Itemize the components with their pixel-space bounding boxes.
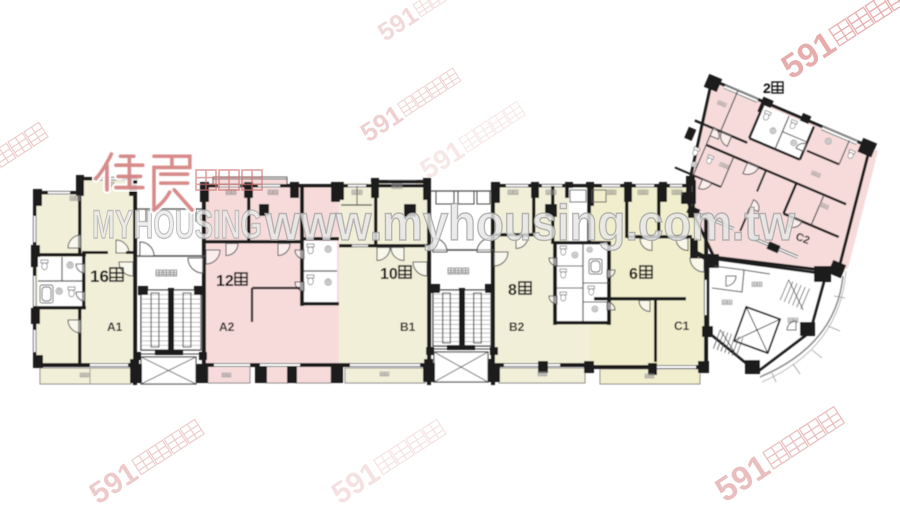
svg-text:A2: A2 [219, 320, 235, 334]
svg-text:www.myhousing.com.tw: www.myhousing.com.tw [264, 195, 795, 251]
svg-text:12: 12 [216, 273, 234, 290]
svg-text:6: 6 [629, 266, 638, 283]
svg-text:591: 591 [355, 99, 408, 148]
svg-text:MYHOUSING: MYHOUSING [92, 203, 262, 247]
svg-text:B1: B1 [400, 320, 416, 334]
svg-text:591: 591 [84, 456, 144, 506]
svg-text:8: 8 [508, 282, 517, 299]
svg-text:591: 591 [709, 447, 777, 506]
svg-text:B2: B2 [509, 320, 525, 334]
svg-text:16: 16 [90, 267, 109, 286]
svg-text:591: 591 [326, 456, 386, 506]
svg-text:C1: C1 [674, 319, 690, 333]
svg-text:2: 2 [763, 80, 771, 96]
svg-text:10: 10 [380, 266, 398, 283]
svg-text:A1: A1 [107, 320, 123, 334]
